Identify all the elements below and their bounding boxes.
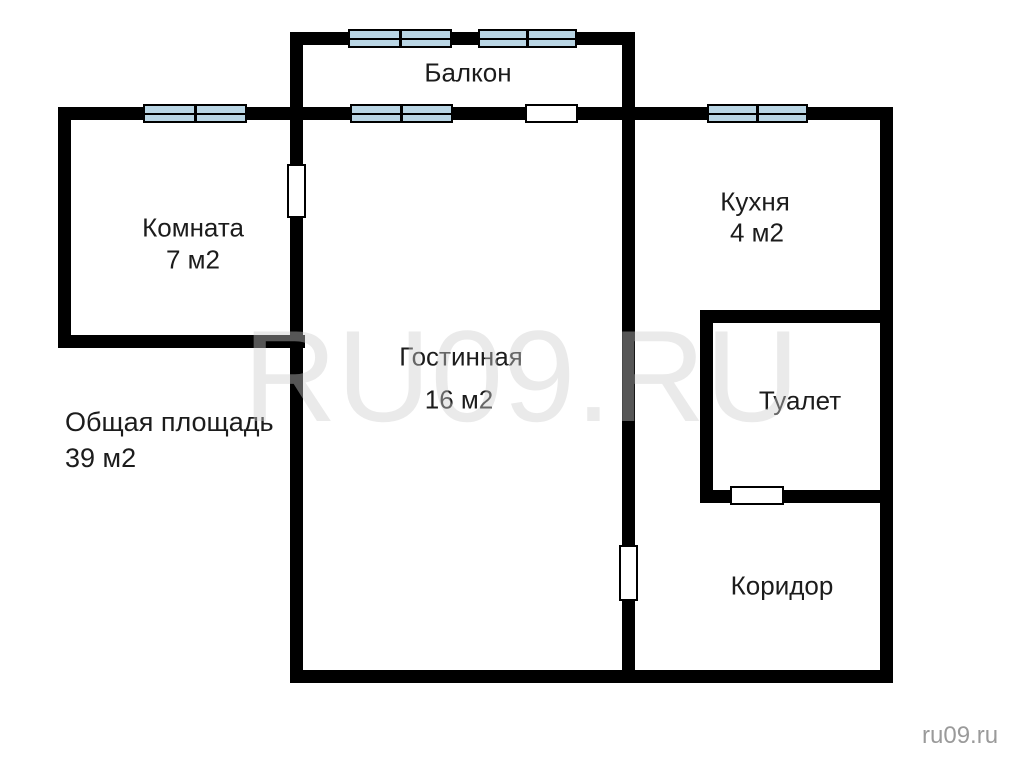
room-window xyxy=(143,104,247,123)
kitchen-window xyxy=(707,104,808,123)
watermark: RU09.RU xyxy=(243,311,799,441)
balcony-label: Балкон xyxy=(424,58,511,89)
bottom-outer-wall xyxy=(290,670,893,683)
corridor-label: Коридор xyxy=(731,571,834,602)
total-area-value: 39 м2 xyxy=(65,440,274,476)
living-room-label: Гостинная xyxy=(399,342,523,373)
kitchen-label: Кухня xyxy=(720,187,790,218)
room-bottom-wall xyxy=(58,335,305,348)
room-label: Комната xyxy=(142,213,244,244)
site-credit: ru09.ru xyxy=(922,722,998,750)
left-outer-wall xyxy=(58,107,71,348)
kitchen-area-label: 4 м2 xyxy=(730,218,784,249)
room-door xyxy=(287,164,306,218)
living-room-door xyxy=(619,545,638,601)
floor-plan: Общая площадь 39 м2 RU09.RU ru09.ru Балк… xyxy=(0,0,1024,768)
kitchen-bottom-wall xyxy=(700,310,893,323)
toilet-label: Туалет xyxy=(759,386,841,417)
balcony-top-wall xyxy=(290,32,635,45)
living-room-area-label: 16 м2 xyxy=(425,385,493,416)
balcony-door xyxy=(525,104,578,123)
living-room-window xyxy=(350,104,453,123)
balcony-window-1 xyxy=(348,29,452,48)
total-area-label: Общая площадь xyxy=(65,404,274,440)
toilet-bottom-wall xyxy=(700,490,893,503)
room-area-label: 7 м2 xyxy=(166,245,220,276)
toilet-door xyxy=(730,486,784,505)
total-area: Общая площадь 39 м2 xyxy=(65,404,274,476)
right-outer-wall xyxy=(880,107,893,683)
balcony-window-2 xyxy=(478,29,577,48)
toilet-left-wall xyxy=(700,310,713,503)
